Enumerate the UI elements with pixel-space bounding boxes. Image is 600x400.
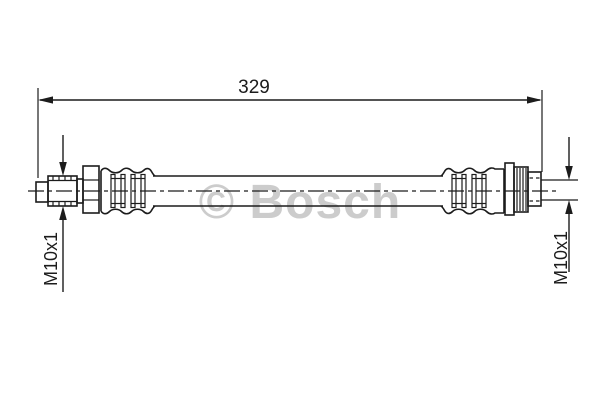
left-thread-stub xyxy=(36,182,48,202)
right-knurl-lines xyxy=(517,168,526,211)
right-hidden-thread-lines xyxy=(530,178,541,201)
dimension-arrowhead-left xyxy=(38,96,53,103)
right-arrow-top-head xyxy=(565,166,573,180)
left-fitting xyxy=(36,166,155,214)
brake-hose-technical-drawing: © Bosch xyxy=(0,0,600,400)
left-hex-nut xyxy=(83,166,99,213)
right-fitting xyxy=(441,163,578,215)
right-thread-label: M10x1 xyxy=(551,231,571,285)
bosch-watermark: © Bosch xyxy=(199,176,401,229)
left-arrow-bottom-head xyxy=(59,206,67,220)
overall-length-value: 329 xyxy=(238,77,270,98)
right-arrow-bottom-head xyxy=(565,200,573,214)
drawing-svg: © Bosch xyxy=(0,0,600,400)
overall-length-dimension xyxy=(38,88,542,178)
left-arrow-top-head xyxy=(59,162,67,176)
left-thread-label: M10x1 xyxy=(41,232,61,286)
dimension-arrowhead-right xyxy=(527,96,542,103)
right-flange-washer xyxy=(505,163,514,215)
